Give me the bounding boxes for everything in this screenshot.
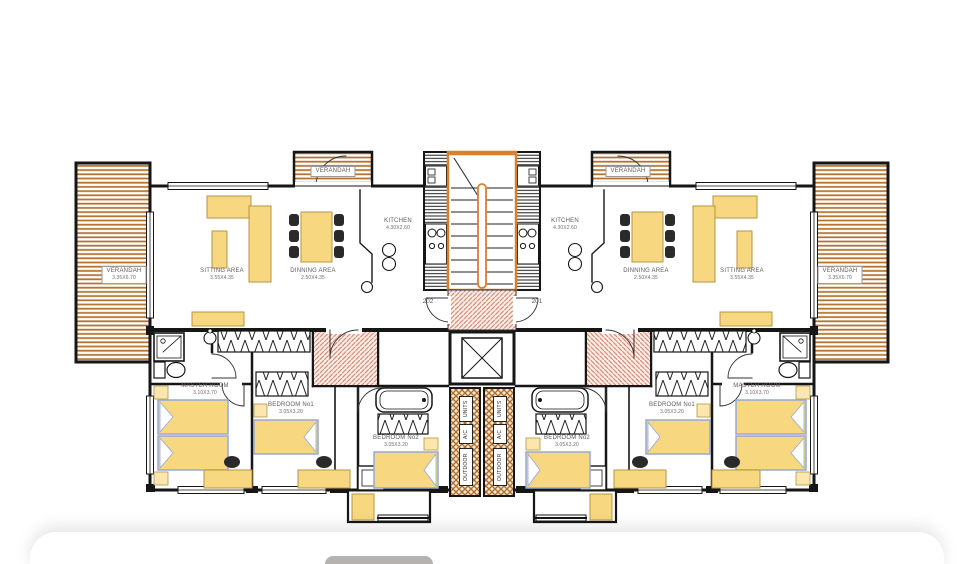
elevator xyxy=(450,332,514,384)
side-verandah xyxy=(76,163,150,362)
floorplan-page: VERANDAH 3.35X6.70 VERANDAH 3.35X6.70 VE… xyxy=(0,0,974,564)
ac-label-units-right: UNITS xyxy=(493,396,507,422)
door-number-202: 202 xyxy=(423,298,434,305)
ac-label-outdoor-left: OUTDOOR xyxy=(459,448,473,486)
bathroom xyxy=(154,329,216,378)
ac-label-ac-left: A/C xyxy=(459,424,473,444)
room-label-bedroom1-left: BEDROOM No1 3.05X3.20 xyxy=(268,402,314,416)
door-number-201: 201 xyxy=(532,298,543,305)
right-unit xyxy=(516,152,888,522)
stair-core xyxy=(448,152,516,290)
hall-floor xyxy=(314,332,377,385)
kitchen-counter xyxy=(360,190,396,293)
room-label-dinning-left: DINNING AREA 2.50X4.35 xyxy=(290,268,335,282)
ac-label-units-left: UNITS xyxy=(459,396,473,422)
room-label-sitting-right: SITTING AREA 3.55X4.35 xyxy=(720,268,764,282)
dining-set xyxy=(289,212,344,262)
master-furniture xyxy=(154,386,252,488)
entry-landing xyxy=(426,290,538,330)
sitting-area-furniture xyxy=(192,196,271,326)
room-label-master-left: MASTER ROOM 3.10X3.70 xyxy=(181,383,229,397)
bottom-sheet xyxy=(30,532,944,564)
bedroom2-furniture xyxy=(348,388,438,522)
room-label-bedroom2-left: BEDROOM No2 3.05X3.20 xyxy=(373,435,419,449)
room-label-verandah-right: VERANDAH 3.35X6.70 xyxy=(818,266,863,284)
bedroom1-furniture xyxy=(254,404,384,490)
room-label-kitchen-right: KITCHEN 4.30X2.60 xyxy=(551,218,579,232)
room-label-bedroom2-right: BEDROOM No2 3.05X3.20 xyxy=(544,435,590,449)
room-label-verandah-top-left: VERANDAH xyxy=(311,166,356,177)
room-label-bedroom1-right: BEDROOM No1 3.05X3.20 xyxy=(649,402,695,416)
room-label-verandah-top-right: VERANDAH xyxy=(606,166,651,177)
room-label-dinning-right: DINNING AREA 2.50X4.35 xyxy=(623,268,668,282)
room-label-master-right: MASTER ROOM 3.10X3.70 xyxy=(733,383,781,397)
room-label-sitting-left: SITTING AREA 3.55X4.35 xyxy=(200,268,244,282)
room-label-verandah-left: VERANDAH 3.35X6.70 xyxy=(102,266,147,284)
room-label-kitchen-left: KITCHEN 4.30X2.60 xyxy=(384,218,412,232)
ac-label-outdoor-right: OUTDOOR xyxy=(493,448,507,486)
left-unit xyxy=(76,152,448,522)
kitchen-appliance-strip xyxy=(424,152,448,290)
ac-label-ac-right: A/C xyxy=(493,424,507,444)
sheet-drag-handle[interactable] xyxy=(325,556,433,564)
